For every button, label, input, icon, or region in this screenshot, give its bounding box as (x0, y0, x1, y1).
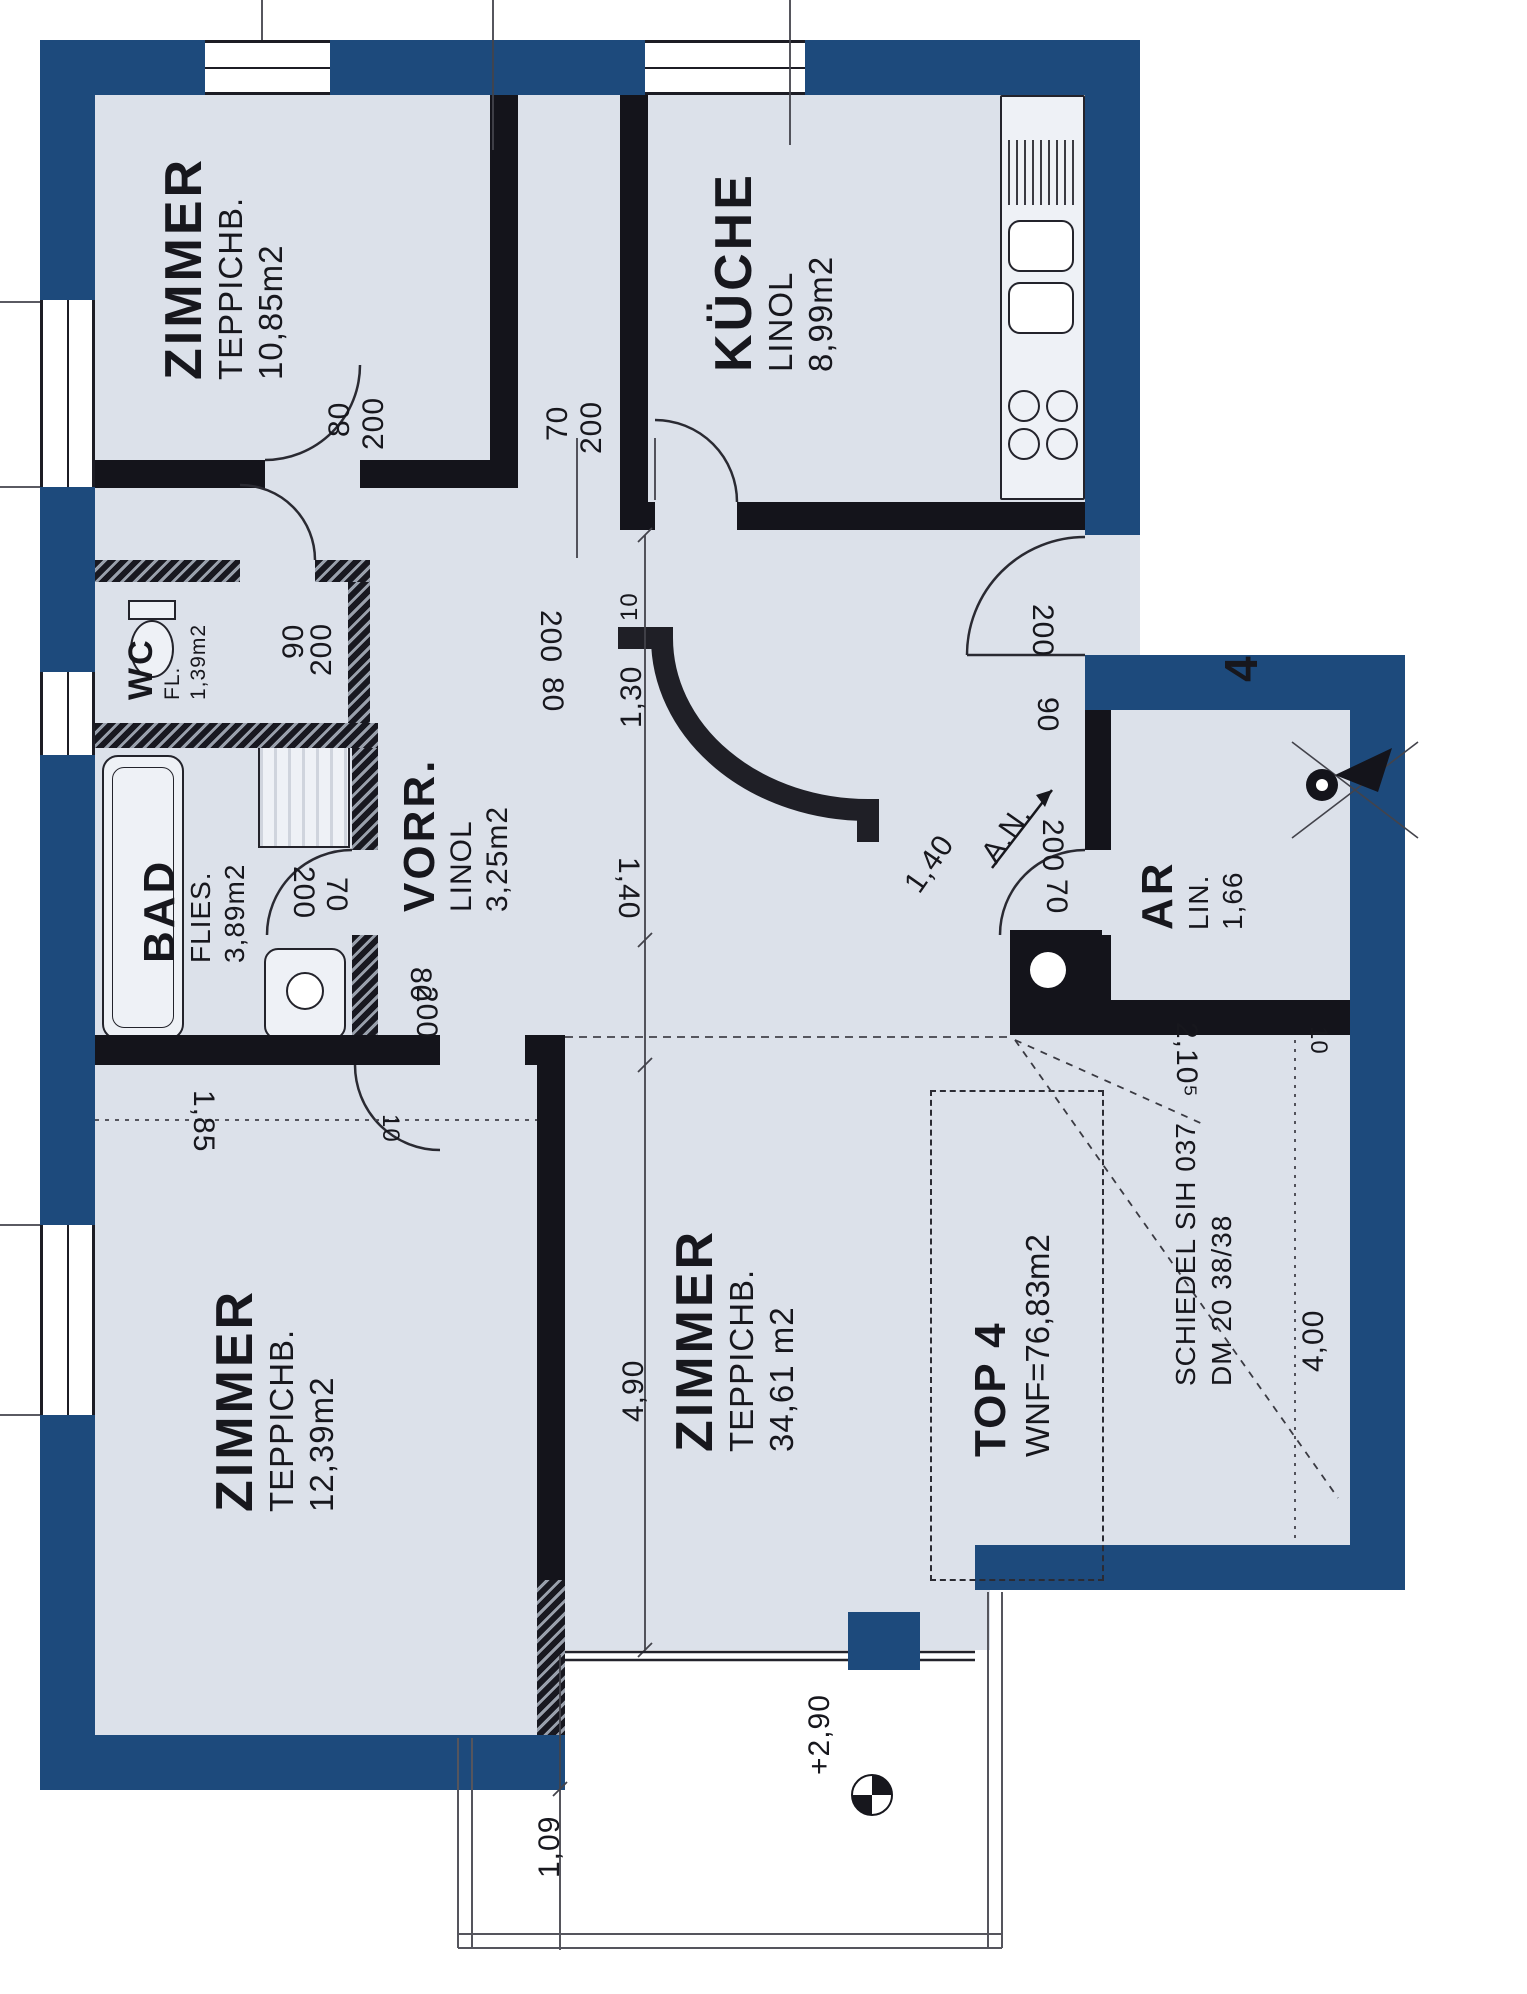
room-area: 12,39m2 (302, 1289, 342, 1512)
door-arc-wc (240, 485, 315, 560)
dim-zimmer-left-185: 1,85 (186, 1090, 220, 1152)
dim-chimney-10: 10 (1304, 1026, 1332, 1055)
dim-ar-door-height: 200 (1035, 819, 1069, 872)
room-name: BAD (136, 859, 184, 963)
dim-corridor-200: 200 (533, 610, 567, 663)
dim-chimney-210: 2,10⁵ (1169, 1022, 1203, 1098)
terrace-window-line (565, 1652, 975, 1660)
floor-plan: ZIMMER TEPPICHB. 10,85m2 KÜCHE LINOL 8,9… (0, 0, 1527, 1994)
room-area: 10,85m2 (251, 157, 291, 380)
dim-hall-490: 4,90 (617, 1360, 651, 1422)
wnf-value: WNF=76,83m2 (1016, 1234, 1060, 1457)
room-area: 1,66 (1216, 860, 1250, 930)
curved-entrance-wall (618, 638, 868, 842)
dim-ar-door-width: 70 (1039, 879, 1073, 914)
room-name: AR (1134, 860, 1182, 930)
dim-corridor-80: 80 (535, 677, 569, 712)
dim-bad-door-width: 70 (319, 877, 353, 912)
room-zimmer-top-label: ZIMMER TEPPICHB. 10,85m2 (157, 157, 291, 380)
room-wc-label: WC FL. 1,39m2 (122, 624, 212, 700)
elevation-marker-icon (852, 1775, 892, 1815)
room-flooring: FL. (160, 624, 186, 700)
dim-entrance-width: 90 (1030, 697, 1064, 732)
room-zimmer-main-label: ZIMMER TEPPICHB. 34,61 m2 (668, 1229, 802, 1452)
dim-wc-door-height: 200 (305, 623, 339, 676)
dim-chimney-400: 4,00 (1297, 1310, 1331, 1372)
dim-terrace-109: 1,09 (533, 1816, 567, 1878)
dim-zimmer-top-door-height: 200 (357, 397, 391, 450)
room-area: 34,61 m2 (762, 1229, 802, 1452)
door-arcs (240, 365, 1085, 1150)
terrace-railing (458, 1592, 1002, 1948)
room-flooring: LIN. (1182, 860, 1216, 930)
room-area: 3,89m2 (218, 859, 252, 963)
room-flooring: TEPPICHB. (262, 1289, 302, 1512)
room-name: ZIMMER (208, 1289, 262, 1512)
room-vorraum-label: VORR. LINOL 3,25m2 (396, 758, 516, 912)
room-zimmer-left-label: ZIMMER TEPPICHB. 12,39m2 (208, 1289, 342, 1512)
dim-entrance-height: 200 (1025, 604, 1059, 657)
dim-zimmer-left-10: 10 (376, 1114, 404, 1143)
room-kueche-label: KÜCHE LINOL 8,99m2 (707, 172, 841, 372)
room-flooring: LINOL (444, 758, 480, 912)
terrace-elevation: +2,90 (803, 1694, 837, 1775)
dim-zimmer-top-door-width: 80 (323, 402, 357, 437)
room-flooring: LINOL (761, 172, 801, 372)
dim-kueche-door-width: 70 (541, 406, 575, 441)
dim-hall-140: 1,40 (611, 857, 645, 919)
room-name: KÜCHE (707, 172, 761, 372)
top-number: TOP 4 (966, 1234, 1016, 1457)
room-name: VORR. (396, 758, 444, 912)
room-flooring: TEPPICHB. (722, 1229, 762, 1452)
chimney-type: SCHIEDEL SIH 037 (1168, 1122, 1204, 1386)
door-arc-kueche (655, 420, 737, 502)
dim-bad-door-height: 200 (286, 866, 320, 919)
room-area: 8,99m2 (801, 172, 841, 372)
apartment-summary-label: TOP 4 WNF=76,83m2 (966, 1234, 1060, 1457)
room-ar-label: AR LIN. 1,66 (1134, 860, 1250, 930)
dim-corridor-10: 10 (616, 592, 644, 621)
room-bad-label: BAD FLIES. 3,89m2 (136, 859, 252, 963)
room-flooring: FLIES. (184, 859, 218, 963)
dim-kueche-door-height: 200 (575, 401, 609, 454)
room-area: 3,25m2 (480, 758, 516, 912)
chimney-spec-label: SCHIEDEL SIH 037 DM 20 38/38 (1168, 1122, 1240, 1386)
room-flooring: TEPPICHB. (211, 157, 251, 380)
chimney-size: DM 20 38/38 (1204, 1122, 1240, 1386)
room-name: WC (122, 624, 160, 700)
room-area: 1,39m2 (186, 624, 212, 700)
room-name: ZIMMER (157, 157, 211, 380)
stairs-fragment-icon (1292, 742, 1418, 838)
unit-number: 4 (1214, 655, 1268, 682)
room-name: ZIMMER (668, 1229, 722, 1452)
dim-corridor-130: 1,30 (615, 666, 649, 728)
dim-zimmer-left-door-height: 200 (409, 986, 443, 1039)
